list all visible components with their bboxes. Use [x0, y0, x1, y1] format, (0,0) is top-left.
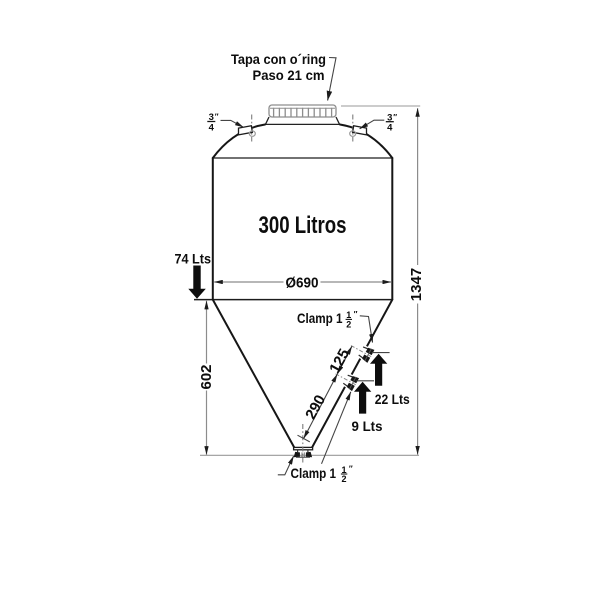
svg-text:2: 2 [341, 474, 346, 484]
svg-text:″: ″ [354, 310, 358, 319]
svg-text:″: ″ [349, 465, 353, 474]
svg-text:9 Lts: 9 Lts [352, 419, 383, 434]
svg-text:74 Lts: 74 Lts [175, 251, 212, 266]
svg-text:Tapa con o´ring: Tapa con o´ring [231, 51, 326, 67]
svg-text:Paso 21 cm: Paso 21 cm [253, 67, 325, 83]
svg-text:1347: 1347 [408, 268, 425, 301]
svg-text:4: 4 [209, 123, 215, 134]
svg-text:Clamp 1: Clamp 1 [291, 466, 337, 481]
svg-text:2: 2 [346, 320, 351, 330]
svg-text:22 Lts: 22 Lts [375, 392, 410, 407]
svg-text:″: ″ [393, 113, 397, 122]
svg-text:602: 602 [198, 364, 215, 389]
svg-text:Clamp 1: Clamp 1 [297, 311, 343, 326]
svg-text:Ø690: Ø690 [286, 275, 319, 291]
svg-text:″: ″ [215, 113, 219, 122]
svg-text:300 Litros: 300 Litros [259, 212, 347, 239]
svg-text:4: 4 [387, 123, 393, 134]
